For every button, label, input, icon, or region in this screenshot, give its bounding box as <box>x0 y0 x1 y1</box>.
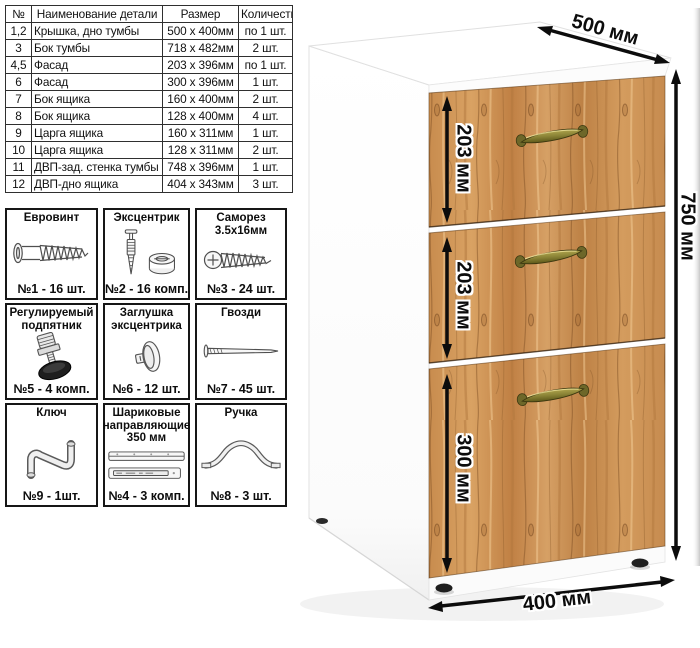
assembly-sheet: № Наименование детали Размер Количество … <box>0 0 700 648</box>
dimension-label-drawer3: 300 мм <box>452 414 475 524</box>
cabinet-foot <box>316 518 328 524</box>
cabinet-foot <box>632 559 649 568</box>
dimension-label-height: 750 мм <box>676 172 699 282</box>
photo-backdrop-edge <box>692 8 700 566</box>
dimension-label-drawer1: 203 мм <box>452 104 475 214</box>
cabinet-side-panel <box>309 46 429 600</box>
dimension-arrow-height <box>671 69 681 561</box>
cabinet-render <box>0 0 700 648</box>
cabinet-foot <box>436 584 453 593</box>
dimension-label-drawer2: 203 мм <box>452 241 475 351</box>
